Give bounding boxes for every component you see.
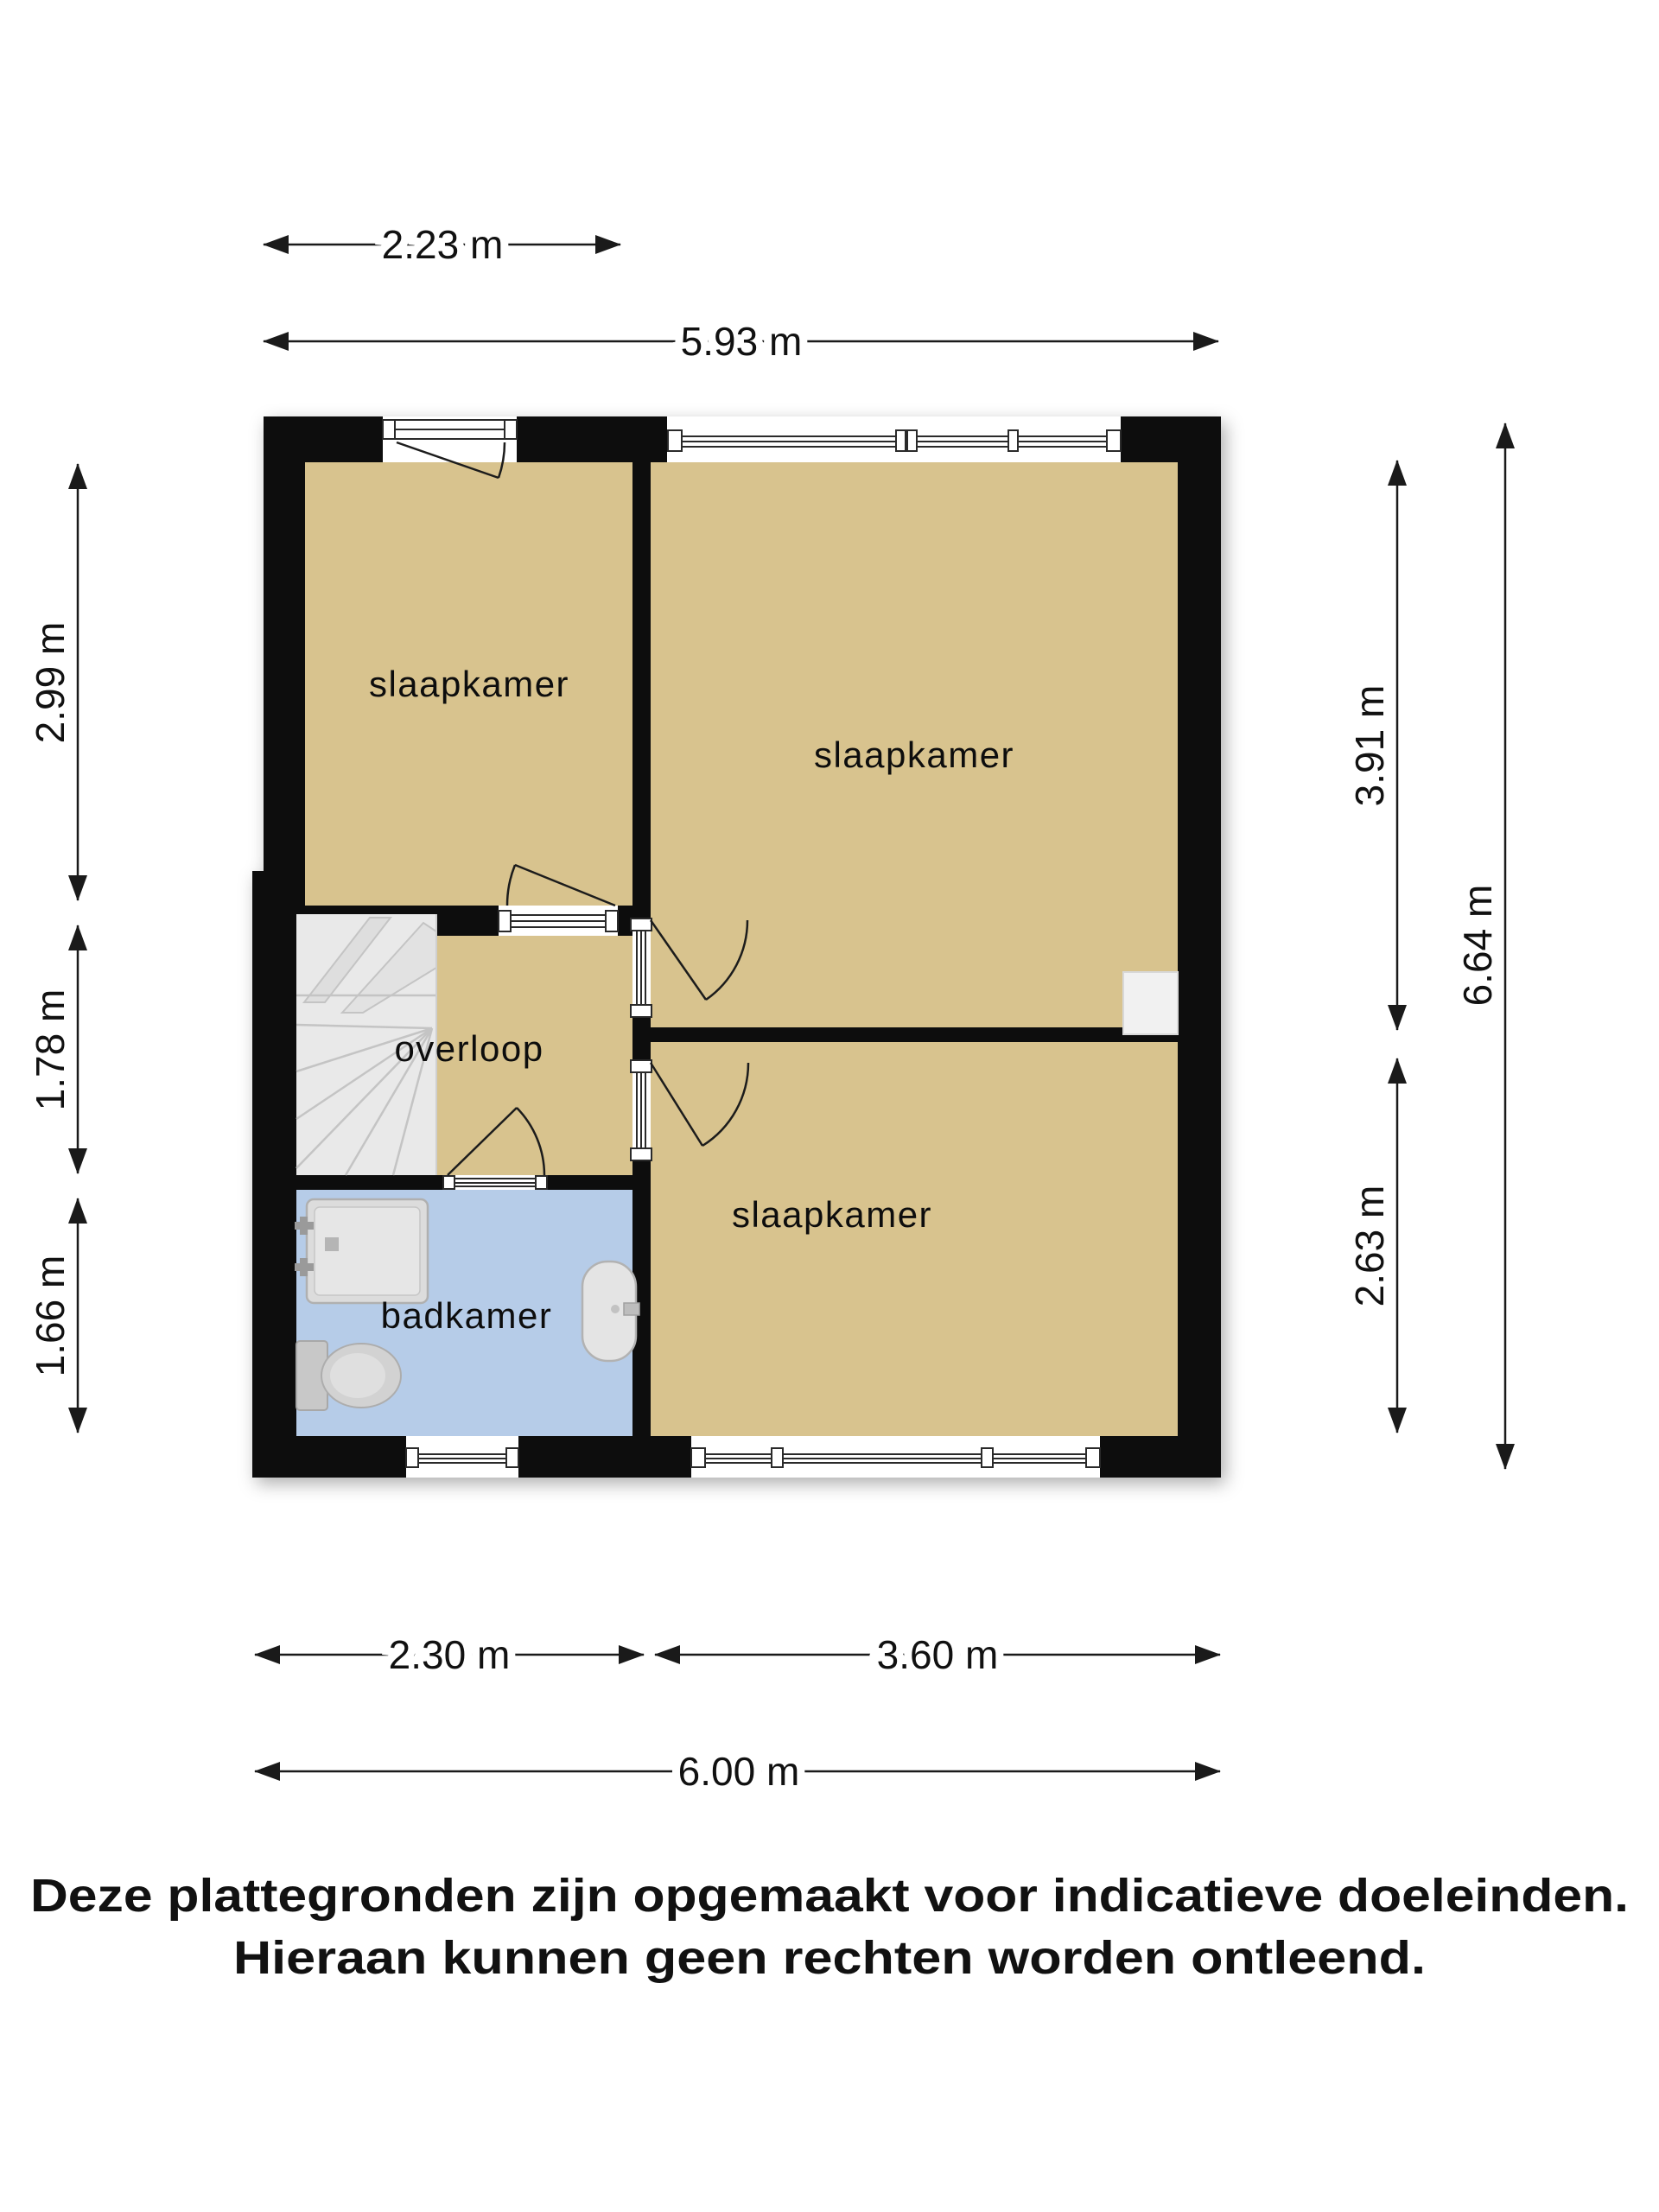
toilet	[296, 1341, 401, 1410]
label-bathroom: badkamer	[381, 1295, 553, 1336]
dim-label-top-full: 5.93 m	[681, 319, 803, 364]
window-bathroom	[406, 1436, 518, 1478]
room-bedroom-bottom	[651, 1042, 1178, 1436]
dim-label-right-2: 2.63 m	[1347, 1185, 1392, 1307]
window-bedroom-top-right	[667, 416, 1121, 462]
floorplan-page: slaapkamer slaapkamer slaapkamer overloo…	[0, 0, 1659, 2212]
label-landing: overloop	[394, 1028, 543, 1069]
dim-label-bottom-full: 6.00 m	[678, 1749, 800, 1794]
disclaimer-line-2: Hieraan kunnen geen rechten worden ontle…	[233, 1932, 1426, 1984]
dim-label-left-1: 2.99 m	[28, 622, 73, 744]
duct	[1123, 972, 1178, 1034]
floorplan: slaapkamer slaapkamer slaapkamer overloo…	[252, 416, 1221, 1478]
dim-label-right-1: 3.91 m	[1347, 685, 1392, 807]
dim-label-bottom-right: 3.60 m	[877, 1632, 999, 1677]
floorplan-canvas: slaapkamer slaapkamer slaapkamer overloo…	[0, 0, 1659, 2212]
dim-label-left-3: 1.66 m	[28, 1255, 73, 1377]
disclaimer: Deze plattegronden zijn opgemaakt voor i…	[30, 1870, 1629, 1984]
disclaimer-line-1: Deze plattegronden zijn opgemaakt voor i…	[30, 1870, 1629, 1922]
dim-label-right-3: 6.64 m	[1455, 885, 1500, 1007]
label-bedroom-top-left: slaapkamer	[369, 664, 569, 704]
dim-label-bottom-left: 2.30 m	[389, 1632, 511, 1677]
label-bedroom-bottom: slaapkamer	[732, 1194, 932, 1235]
sink	[582, 1262, 639, 1361]
dim-label-left-2: 1.78 m	[28, 989, 73, 1111]
dim-label-top-partial: 2.23 m	[382, 222, 504, 267]
label-bedroom-top-right: slaapkamer	[814, 734, 1014, 775]
shower	[295, 1199, 428, 1303]
window-bedroom-bottom	[691, 1436, 1100, 1478]
